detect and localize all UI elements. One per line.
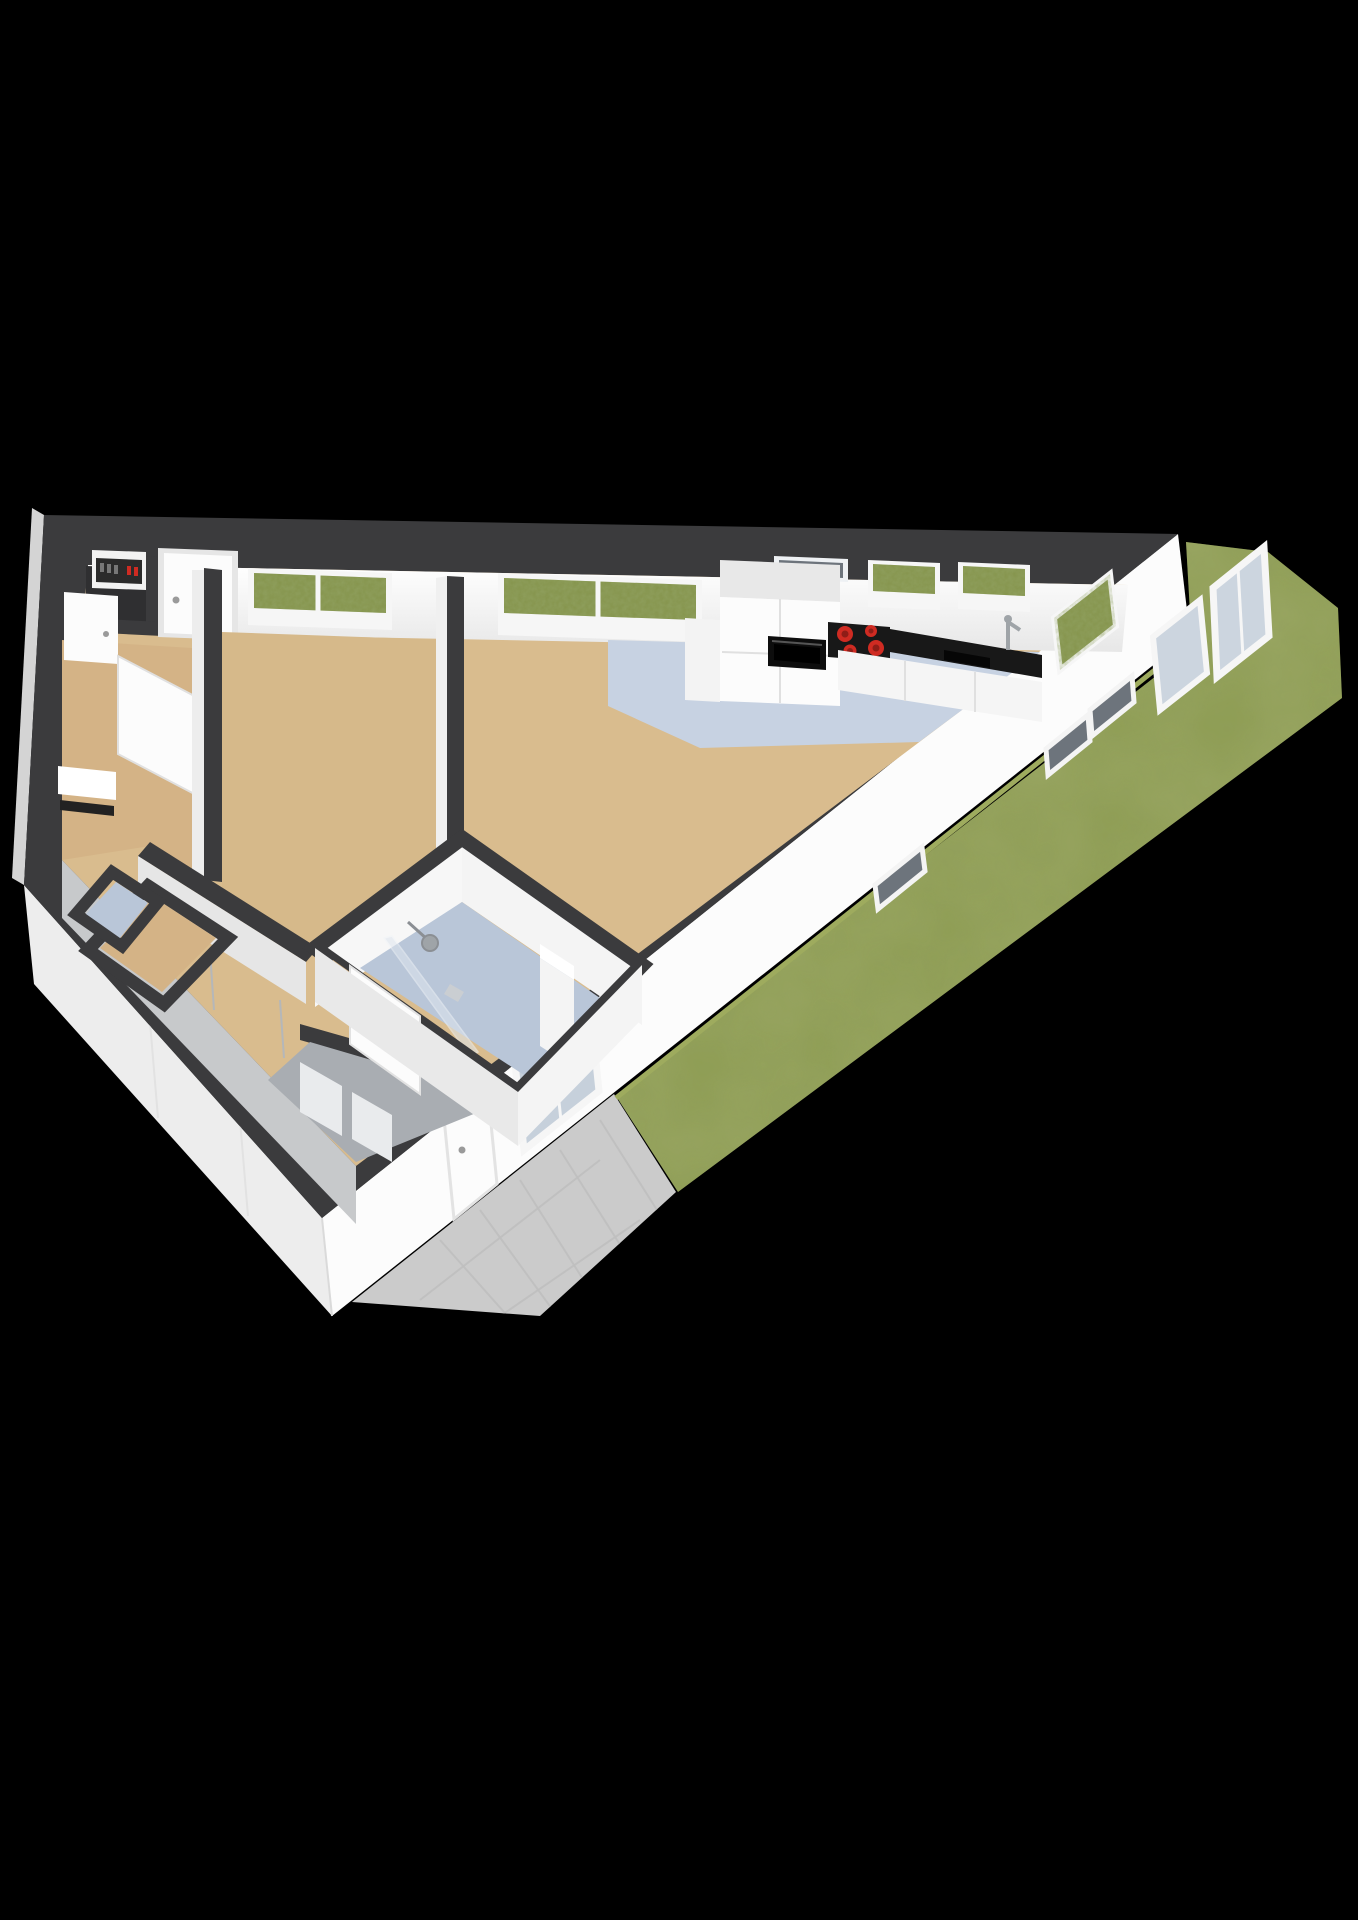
breaker-icon xyxy=(107,564,111,573)
kitchen-window xyxy=(958,562,1030,612)
burner-center xyxy=(869,629,874,634)
hall-side-door xyxy=(64,592,118,664)
hedge-texture xyxy=(963,566,1025,596)
kitchen-window xyxy=(868,560,940,610)
breaker-icon xyxy=(114,565,118,574)
door-handle xyxy=(173,597,180,604)
hall-bedroom-wall-face xyxy=(192,570,204,882)
hedge-texture xyxy=(873,564,935,594)
burner-center xyxy=(842,631,849,638)
closet-side-wall-top xyxy=(146,556,160,628)
burner-center xyxy=(873,645,880,652)
side-cabinet xyxy=(685,618,720,702)
door-handle xyxy=(459,1147,466,1154)
shower-head xyxy=(422,935,438,951)
breaker-icon xyxy=(100,563,104,572)
bedroom-living-wall-top xyxy=(447,576,464,852)
hall-bedroom-wall-top xyxy=(204,568,222,882)
floorplan-canvas xyxy=(0,0,1358,1920)
door-handle xyxy=(103,631,109,637)
floorplan-stage xyxy=(0,0,1358,1920)
breaker-icon-red xyxy=(134,567,138,576)
tall-cabinet-top xyxy=(720,560,840,602)
bedroom-window xyxy=(248,568,392,630)
bedroom-living-wall-face xyxy=(436,576,447,852)
breaker-icon-red xyxy=(127,566,131,575)
living-window xyxy=(498,573,702,642)
